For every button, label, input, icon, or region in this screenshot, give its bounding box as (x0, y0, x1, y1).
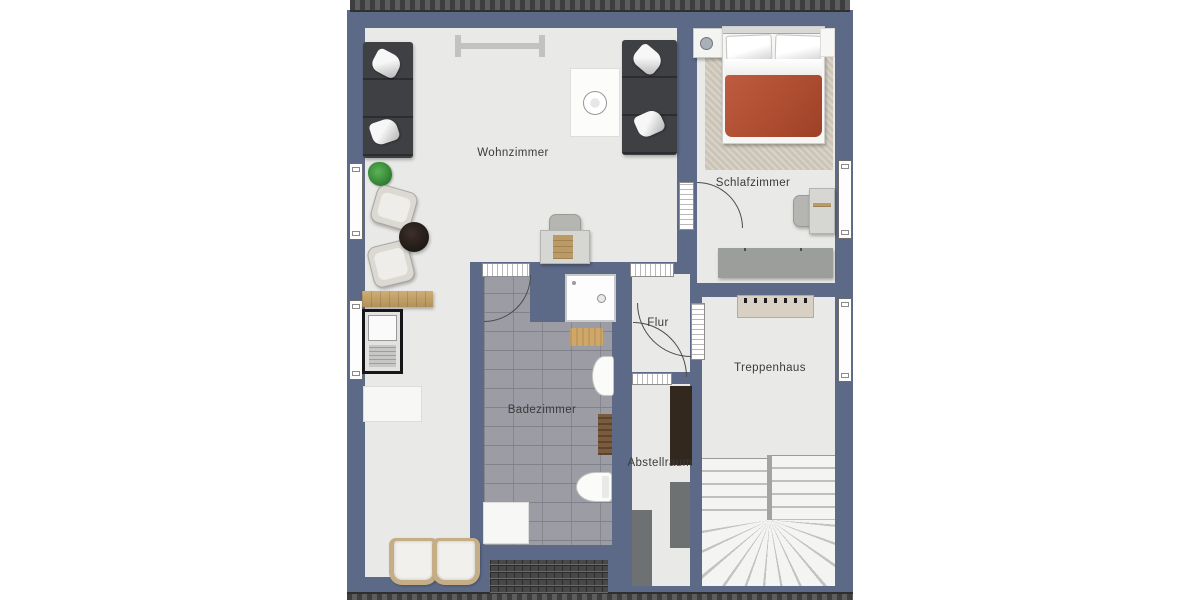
stairs-winder (702, 520, 835, 586)
bath-mat-wood (570, 328, 603, 346)
roof-edge-top (350, 0, 850, 12)
bathroom-sink (592, 356, 614, 396)
room-label-abstellraum: Abstellraum (627, 457, 692, 469)
bed-headboard (723, 27, 824, 34)
nightstand-knob (700, 37, 713, 50)
floor-plan: Wohnzimmer Schlafzimmer Flur Treppenhaus… (347, 0, 853, 600)
radiator (737, 295, 814, 318)
bed (722, 26, 825, 144)
plant (368, 162, 392, 186)
stairs-right-flight (772, 455, 835, 521)
sofa-right (622, 40, 677, 155)
area-rug (570, 68, 620, 137)
desk-detail (553, 235, 573, 259)
sofa-pillow (369, 47, 404, 80)
bedside-table (820, 28, 835, 57)
sofa-pillow (630, 42, 665, 77)
storage-cabinet (670, 386, 692, 465)
stairs-left-flight (702, 458, 767, 529)
room-label-flur: Flur (647, 317, 668, 329)
desk-detail (813, 203, 831, 207)
sofa-pillow (632, 108, 666, 140)
window-left-lower (349, 300, 363, 380)
door-bedroom (679, 182, 694, 230)
window-right-bedroom (838, 160, 852, 239)
storage-shelf (632, 510, 652, 586)
wicker-chair (389, 538, 438, 585)
bed-pillow (726, 34, 773, 62)
room-label-badezimmer: Badezimmer (508, 404, 577, 416)
sideboard (718, 248, 833, 278)
storage-shelf (670, 482, 690, 548)
wicker-chair (432, 538, 480, 585)
shower (565, 274, 616, 322)
room-label-schlafzimmer: Schlafzimmer (716, 177, 790, 189)
door-flur-top (630, 263, 674, 277)
sofa-pillow (368, 116, 401, 146)
bed-pillow (775, 34, 822, 62)
rail-bar (459, 43, 541, 49)
bedroom-desk (809, 188, 835, 234)
bed-duvet (725, 75, 822, 137)
wall-shower-nook (530, 262, 565, 322)
towel-radiator (598, 414, 612, 455)
desk (540, 230, 590, 264)
clothes-rail (455, 35, 545, 57)
kitchen-sink (362, 309, 403, 374)
door-treppenhaus (691, 303, 705, 360)
room-label-treppenhaus: Treppenhaus (734, 362, 806, 374)
floor-plan-canvas: Wohnzimmer Schlafzimmer Flur Treppenhaus… (0, 0, 1200, 600)
side-table (363, 386, 422, 422)
roof-shingle-patch (490, 560, 608, 593)
window-left-living (349, 163, 363, 240)
sink-basin (368, 315, 397, 341)
window-right-stairs (838, 298, 852, 382)
sink-drainer (369, 345, 396, 367)
room-label-wohnzimmer: Wohnzimmer (477, 147, 549, 159)
toilet (576, 472, 612, 502)
bath-mat-white (483, 502, 529, 544)
coffee-table (399, 222, 429, 252)
wood-shelf (362, 291, 433, 307)
sofa-left (363, 42, 413, 158)
roof-edge-bottom (347, 592, 853, 600)
